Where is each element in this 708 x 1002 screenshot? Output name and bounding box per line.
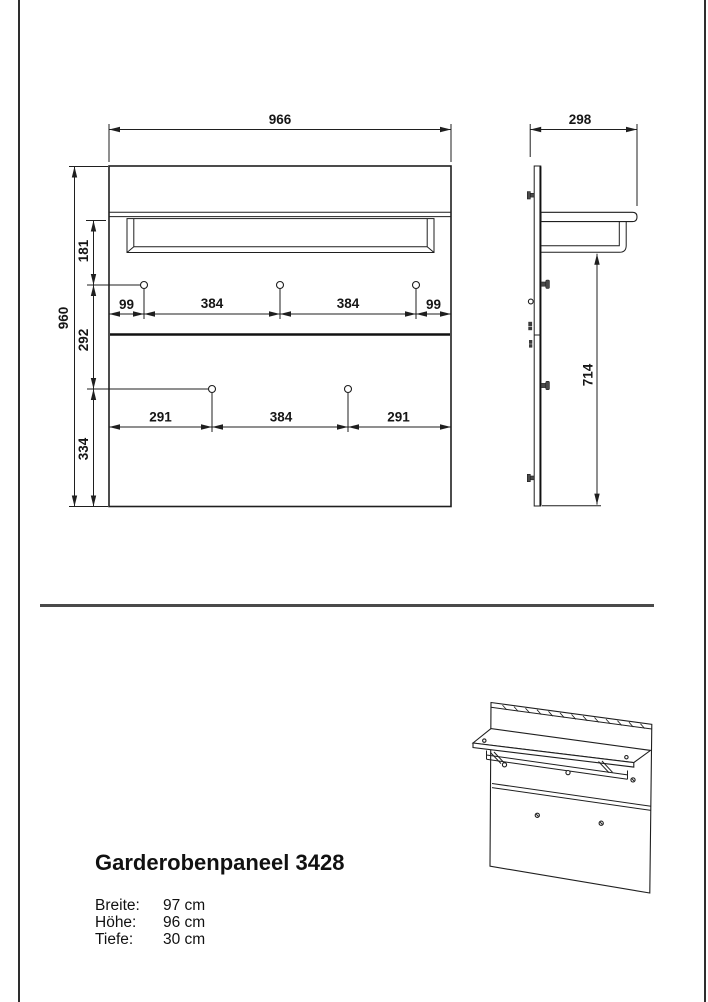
dim-front-width: 966 <box>109 112 451 162</box>
perspective-panel <box>490 703 652 894</box>
front-top-hooks <box>87 282 420 320</box>
side-mount-hardware-marks <box>528 322 532 348</box>
side-hanging-rail <box>541 222 626 253</box>
spec-row-hoehe: Höhe: 96 cm <box>95 914 205 931</box>
spec-label-tiefe: Tiefe: <box>95 931 163 948</box>
dim-front-left-chain: 181 292 334 <box>76 221 106 507</box>
front-view: 966 960 181 292 334 <box>56 112 451 507</box>
dim-label-298: 298 <box>569 112 592 127</box>
spec-value-hoehe: 96 cm <box>163 914 205 931</box>
front-bottom-hooks <box>87 386 352 433</box>
dim-label-99-right: 99 <box>426 297 441 312</box>
dim-label-99-left: 99 <box>119 297 134 312</box>
dim-front-bottom-hooks: 291 384 291 <box>109 410 451 428</box>
front-hanging-rail <box>127 219 434 253</box>
spec-value-breite: 97 cm <box>163 897 205 914</box>
dim-label-960: 960 <box>56 307 71 330</box>
dim-label-384-top2: 384 <box>337 296 360 311</box>
side-wall-pegs <box>527 192 534 482</box>
dim-label-384-top1: 384 <box>201 296 224 311</box>
product-title: Garderobenpaneel 3428 <box>95 850 344 876</box>
catalog-page: 966 960 181 292 334 <box>0 0 708 1002</box>
side-coat-hooks <box>541 280 549 390</box>
spec-label-hoehe: Höhe: <box>95 914 163 931</box>
side-view: 298 714 <box>527 112 637 506</box>
dim-label-292: 292 <box>76 329 91 352</box>
dim-side-depth: 298 <box>530 112 637 206</box>
dim-label-714: 714 <box>581 363 596 386</box>
dim-side-rail-height: 714 <box>542 254 601 506</box>
dim-label-291-left: 291 <box>149 410 172 425</box>
dim-label-966: 966 <box>269 112 292 127</box>
dim-label-384-bottom: 384 <box>270 410 293 425</box>
dim-label-334: 334 <box>76 437 91 460</box>
spec-row-breite: Breite: 97 cm <box>95 897 205 914</box>
spec-value-tiefe: 30 cm <box>163 931 205 948</box>
spec-table: Breite: 97 cm Höhe: 96 cm Tiefe: 30 cm <box>95 897 205 948</box>
side-shelf <box>541 212 637 221</box>
perspective-view <box>473 703 652 894</box>
spec-row-tiefe: Tiefe: 30 cm <box>95 931 205 948</box>
side-keyhole-fitting <box>528 299 533 304</box>
dim-label-291-right: 291 <box>387 410 410 425</box>
dim-label-181: 181 <box>76 239 91 262</box>
spec-label-breite: Breite: <box>95 897 163 914</box>
